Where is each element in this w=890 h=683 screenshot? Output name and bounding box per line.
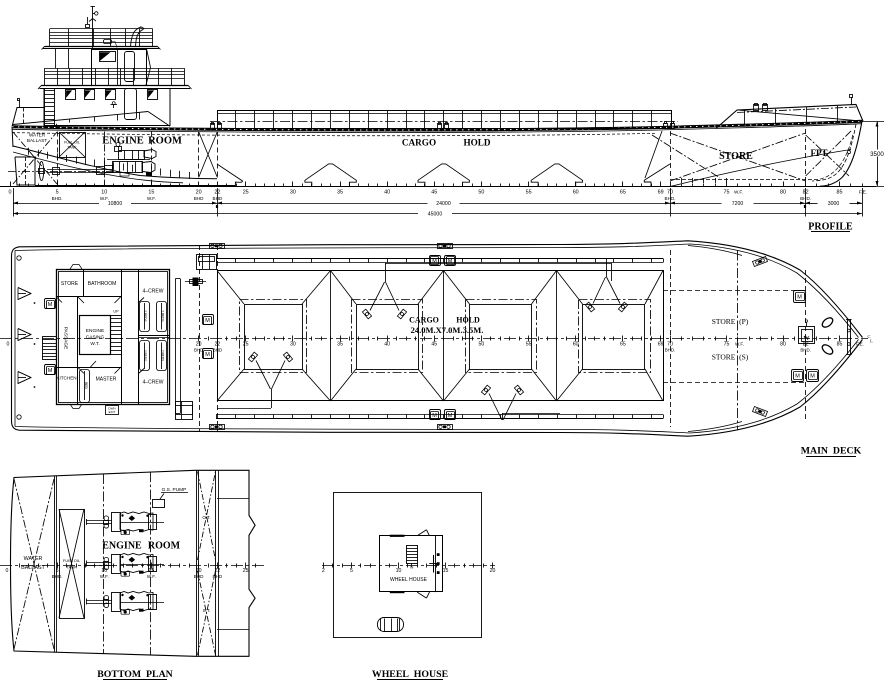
svg-text:WHEEL HOUSE: WHEEL HOUSE [390, 577, 428, 583]
svg-text:FUEL OIL: FUEL OIL [64, 141, 80, 145]
svg-text:4–CREW: 4–CREW [143, 380, 164, 386]
svg-text:10: 10 [101, 568, 107, 574]
svg-text:75: 75 [724, 190, 730, 196]
svg-text:W.F.: W.F. [147, 574, 156, 579]
svg-text:35: 35 [337, 342, 343, 348]
svg-text:5: 5 [56, 190, 59, 196]
svg-text:PROFILE: PROFILE [808, 222, 853, 233]
svg-text:KITCHEN: KITCHEN [56, 376, 76, 381]
svg-text:M: M [205, 352, 210, 358]
svg-text:W.T.: W.T. [90, 341, 99, 347]
svg-text:65: 65 [620, 190, 626, 196]
svg-text:69: 69 [658, 190, 664, 196]
svg-text:M: M [48, 368, 53, 374]
svg-text:40: 40 [384, 190, 390, 196]
svg-text:15: 15 [149, 568, 155, 574]
svg-text:45: 45 [431, 342, 437, 348]
svg-text:55: 55 [526, 190, 532, 196]
svg-text:CARGO: CARGO [402, 138, 436, 148]
svg-text:PASSAGE: PASSAGE [63, 327, 69, 350]
svg-text:10: 10 [396, 568, 402, 574]
svg-text:BHD.: BHD. [665, 196, 676, 201]
svg-text:2 BEDS: 2 BEDS [143, 350, 147, 361]
svg-text:ENGINE: ENGINE [86, 328, 104, 334]
svg-text:BED: BED [84, 382, 88, 389]
svg-text:75: 75 [724, 342, 730, 348]
svg-text:20: 20 [196, 190, 202, 196]
svg-text:STORE: STORE [61, 281, 79, 287]
svg-text:BHD.: BHD. [800, 348, 811, 353]
svg-text:ENGINE: ENGINE [102, 136, 143, 147]
svg-text:2 BEDS: 2 BEDS [161, 310, 165, 321]
svg-text:0: 0 [7, 342, 10, 348]
svg-text:W.F.: W.F. [734, 190, 743, 195]
svg-text:TANK: TANK [67, 146, 77, 150]
svg-text:M: M [795, 374, 800, 380]
svg-text:85: 85 [837, 342, 843, 348]
svg-text:W.F.: W.F. [100, 574, 109, 579]
svg-text:FUEL OIL: FUEL OIL [63, 558, 81, 563]
svg-text:M: M [448, 413, 453, 419]
svg-text:69: 69 [658, 342, 664, 348]
svg-text:W.F.: W.F. [147, 196, 156, 201]
svg-text:65: 65 [620, 342, 626, 348]
svg-text:3000: 3000 [828, 201, 840, 207]
svg-text:STORE (S): STORE (S) [712, 353, 749, 362]
svg-text:S.T.: S.T. [203, 608, 211, 613]
svg-text:2 BEDS: 2 BEDS [143, 310, 147, 321]
svg-text:60: 60 [573, 190, 579, 196]
svg-text:M: M [432, 413, 437, 419]
svg-text:25: 25 [243, 342, 249, 348]
svg-text:FPT: FPT [811, 148, 828, 158]
svg-text:CARGO: CARGO [409, 316, 439, 325]
svg-text:3500: 3500 [870, 151, 884, 158]
svg-text:M: M [797, 295, 802, 301]
svg-text:10: 10 [101, 190, 107, 196]
svg-text:15: 15 [148, 190, 154, 196]
svg-text:M: M [810, 374, 815, 380]
svg-text:M: M [48, 302, 53, 308]
svg-text:O.T.: O.T. [202, 515, 210, 520]
svg-text:80: 80 [780, 342, 786, 348]
svg-text:20: 20 [196, 568, 202, 574]
svg-text:BOTTOM PLAN: BOTTOM PLAN [97, 669, 172, 680]
svg-text:BHD: BHD [194, 196, 204, 201]
svg-text:F.E.: F.E. [859, 190, 867, 196]
svg-text:HOLD: HOLD [456, 316, 480, 325]
svg-text:30: 30 [290, 342, 296, 348]
svg-text:L: L [870, 339, 873, 344]
svg-text:STORE (P): STORE (P) [712, 317, 749, 326]
svg-text:BHD.: BHD. [52, 196, 63, 201]
svg-text:BHD.: BHD. [52, 574, 63, 579]
svg-text:UP: UP [113, 310, 119, 314]
svg-text:BHD.: BHD. [665, 348, 676, 353]
svg-text:IN: IN [410, 566, 414, 570]
svg-text:M: M [448, 259, 453, 265]
svg-text:15: 15 [443, 568, 449, 574]
svg-text:MASTER: MASTER [96, 377, 117, 383]
svg-text:20: 20 [490, 568, 496, 574]
svg-text:WATER: WATER [24, 556, 43, 562]
svg-text:BALLAST: BALLAST [27, 138, 47, 143]
svg-text:25: 25 [243, 568, 249, 574]
svg-text:60: 60 [573, 342, 579, 348]
svg-text:0: 0 [9, 190, 12, 196]
svg-text:85: 85 [837, 190, 843, 196]
svg-text:7200: 7200 [732, 201, 744, 207]
svg-text:5: 5 [56, 568, 59, 574]
svg-text:ROOM: ROOM [148, 136, 182, 147]
svg-text:M: M [432, 259, 437, 265]
svg-text:22: 22 [215, 568, 221, 574]
svg-text:50: 50 [479, 342, 485, 348]
svg-text:55: 55 [526, 342, 532, 348]
svg-text:24000: 24000 [436, 201, 451, 207]
svg-text:W.F.: W.F. [735, 342, 744, 347]
svg-text:25: 25 [243, 190, 249, 196]
svg-text:2 BEDS: 2 BEDS [161, 350, 165, 361]
svg-text:5: 5 [350, 568, 353, 574]
svg-text:0: 0 [6, 568, 9, 574]
svg-text:70: 70 [667, 190, 673, 196]
svg-text:40: 40 [384, 342, 390, 348]
svg-text:80: 80 [780, 190, 786, 196]
svg-text:F.E.: F.E. [856, 342, 864, 347]
svg-text:BHD: BHD [194, 348, 203, 353]
svg-text:30: 30 [290, 190, 296, 196]
svg-text:ENGINE: ENGINE [102, 541, 142, 552]
svg-text:WHEEL HOUSE: WHEEL HOUSE [372, 669, 449, 680]
svg-text:45: 45 [431, 190, 437, 196]
svg-text:45000: 45000 [428, 211, 443, 217]
svg-text:ROOM: ROOM [148, 541, 181, 552]
svg-text:BHD: BHD [213, 574, 223, 579]
svg-text:10800: 10800 [108, 201, 123, 207]
svg-text:WATER: WATER [29, 133, 46, 138]
svg-text:2: 2 [322, 568, 325, 574]
svg-text:BATHROOM: BATHROOM [88, 281, 117, 287]
svg-text:EXIT: EXIT [109, 410, 116, 414]
svg-text:HOLD: HOLD [463, 138, 490, 148]
svg-text:BHD: BHD [213, 348, 222, 353]
svg-text:CASING: CASING [86, 335, 105, 341]
svg-text:50: 50 [478, 190, 484, 196]
svg-text:MAIN DECK: MAIN DECK [801, 446, 862, 457]
svg-text:24.0M.X7.0M.3.5M.: 24.0M.X7.0M.3.5M. [411, 325, 484, 335]
svg-text:35: 35 [337, 190, 343, 196]
svg-text:M: M [205, 318, 210, 324]
svg-text:BHD: BHD [194, 574, 204, 579]
svg-text:4–CREW: 4–CREW [143, 289, 164, 295]
